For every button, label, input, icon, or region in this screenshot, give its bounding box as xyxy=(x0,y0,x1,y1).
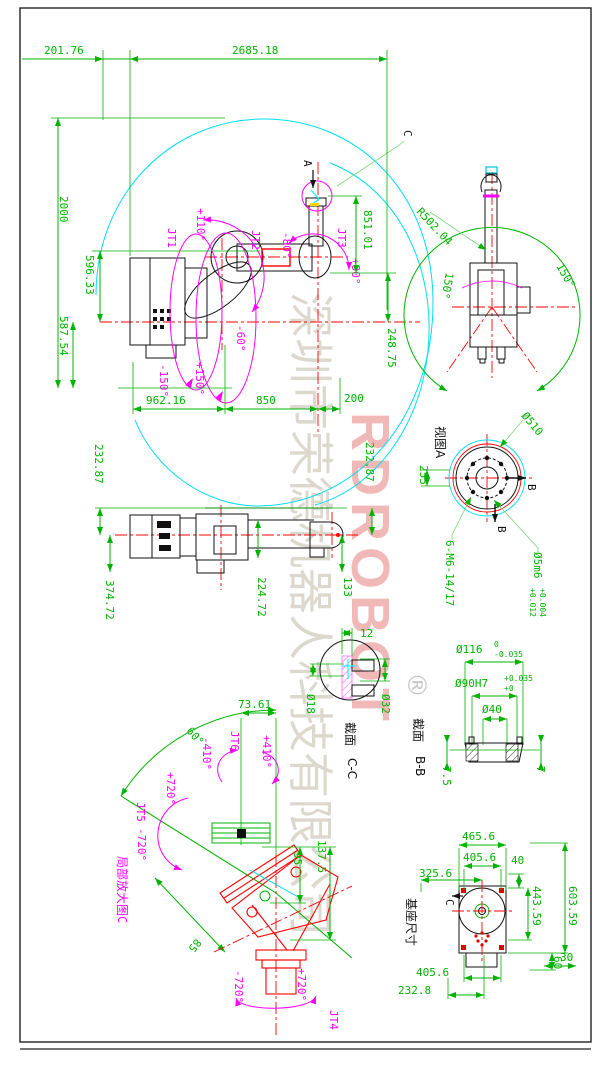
base-section-c-label: C xyxy=(443,899,456,906)
dim-40: 40 xyxy=(511,854,524,867)
view-a-arrow-label: A xyxy=(301,160,314,167)
top-view: R502.04 150° 150° xyxy=(404,167,580,391)
dim-30: 30 xyxy=(560,951,573,964)
jt5-minus-limit: -720° xyxy=(135,828,148,861)
pin-tol-upper: +0.012 xyxy=(528,588,537,617)
dim-851-01: 851.01 xyxy=(361,210,374,250)
dim-d40: Ø40 xyxy=(482,703,502,716)
dim-405-6-top: 405.6 xyxy=(463,851,496,864)
dim-224-72: 224.72 xyxy=(255,577,268,617)
dim-443-59: 443.59 xyxy=(530,886,543,926)
dim-d90-tol-u: +0.035 xyxy=(504,674,533,683)
section-b-arrow-bottom: B xyxy=(495,526,508,533)
base-view-title: 基座尺寸 xyxy=(404,898,419,946)
dim-603-59: 603.59 xyxy=(566,886,579,926)
dim-248-75: 248.75 xyxy=(385,328,398,368)
base-connector xyxy=(153,309,171,329)
jt4-minus-limit: -720° xyxy=(232,970,245,1003)
section-bb: Ø116 0 -0.035 Ø90H7 +0.035 +0 Ø40 7.5 7 … xyxy=(411,640,547,786)
dim-95: 95 xyxy=(291,852,304,865)
jt4-label: JT4 xyxy=(327,1010,340,1030)
section-bb-name: B-B xyxy=(413,756,427,776)
pin-spec: Ø5m6 xyxy=(531,552,544,579)
dim-d32: Ø32 xyxy=(379,694,392,714)
detail-c-label: C xyxy=(401,130,414,137)
section-cc-name: C-C xyxy=(345,758,359,779)
jt1-label: JT1 xyxy=(165,228,178,248)
dim-962-16: 962.16 xyxy=(146,394,186,407)
dim-255: 255 xyxy=(417,465,430,485)
jt6-minus-limit: -410° xyxy=(200,737,213,770)
dim-2685-18: 2685.18 xyxy=(232,44,278,57)
flange-view-title: 视图A xyxy=(433,426,448,459)
jt2-plus-limit: +110° xyxy=(194,208,207,241)
bolt-spec: 6-M6-14/17 xyxy=(443,540,456,606)
dim-137-5: 137.5 xyxy=(315,840,328,873)
dim-12: 12 xyxy=(360,627,373,640)
jt5-label: JT5 xyxy=(134,802,147,822)
dim-587-54: 587.54 xyxy=(57,316,70,356)
dim-2000: 2000 xyxy=(57,196,70,223)
jt1-minus-limit: -150° xyxy=(157,364,170,397)
section-b-arrow-right: B xyxy=(525,484,538,491)
base-mount-holes xyxy=(461,888,504,950)
section-cc-title: 截面 xyxy=(343,722,357,746)
dim-85: 85 xyxy=(185,936,203,954)
watermark-registered-icon: ® xyxy=(401,672,431,698)
section-bb-title: 截面 xyxy=(411,718,425,742)
jt2-label: JT2 xyxy=(249,230,262,250)
dim-7-5: 7.5 xyxy=(440,766,453,786)
jt1-plus-limit: +150° xyxy=(193,362,206,395)
dim-596-33: 596.33 xyxy=(83,255,96,295)
robot-dimension-drawing: 深圳市荣德机器人科技有限公司 RDROBOT ® A C JT1 +110° J… xyxy=(0,0,607,1071)
watermark: 深圳市荣德机器人科技有限公司 RDROBOT ® xyxy=(283,292,431,936)
angle-150-right: 150° xyxy=(553,261,578,290)
dim-73-61: 73.61 xyxy=(238,698,271,711)
dim-405-6-bottom: 405.6 xyxy=(416,966,449,979)
jt5-plus-limit: +720° xyxy=(164,772,177,805)
dim-465-6: 465.6 xyxy=(462,830,495,843)
dim-133: 133 xyxy=(341,577,354,597)
jt6-plus-limit: +410° xyxy=(260,735,273,768)
dim-d116-tol-l: -0.035 xyxy=(494,650,523,659)
dim-200: 200 xyxy=(344,392,364,405)
dim-d116: Ø116 xyxy=(456,643,483,656)
dim-232-87-left: 232.87 xyxy=(92,444,105,484)
pin-tol-lower: +0.004 xyxy=(538,588,547,617)
cad-sheet: 深圳市荣德机器人科技有限公司 RDROBOT ® A C JT1 +110° J… xyxy=(0,0,607,1071)
base-view: C 基座尺寸 465.6 405.6 325.6 40 443.59 603.5… xyxy=(398,830,579,999)
dim-232-8: 232.8 xyxy=(398,984,431,997)
flange-view-a: 视图A 255 Ø510 B B 6-M6-14/17 Ø5m6 +0.012 … xyxy=(417,410,547,618)
dim-325-6: 325.6 xyxy=(419,867,452,880)
dim-d90-tol-l: +0 xyxy=(504,684,514,693)
dim-850: 850 xyxy=(256,394,276,407)
dim-201-76: 201.76 xyxy=(44,44,84,57)
dim-d18: Ø18 xyxy=(304,694,317,714)
jt2-minus-limit: -60° xyxy=(234,325,247,352)
jt3-minus-limit: -80° xyxy=(280,232,293,259)
dim-pitch-circle: Ø510 xyxy=(519,410,546,439)
jt6-label: JT6 xyxy=(228,731,241,751)
detail-c-title: 局部放大图C xyxy=(115,856,130,923)
angle-150-left: 150° xyxy=(438,271,455,299)
dim-d90h7: Ø90H7 xyxy=(455,677,488,690)
dim-374-72: 374.72 xyxy=(103,580,116,620)
dim-d116-tol-u: 0 xyxy=(494,640,499,649)
jt3-label: JT3 xyxy=(335,228,348,248)
dim-232-87-right: 232.87 xyxy=(363,442,376,482)
jt4-plus-limit: +720° xyxy=(295,968,308,1001)
dim-7: 7 xyxy=(534,766,547,773)
